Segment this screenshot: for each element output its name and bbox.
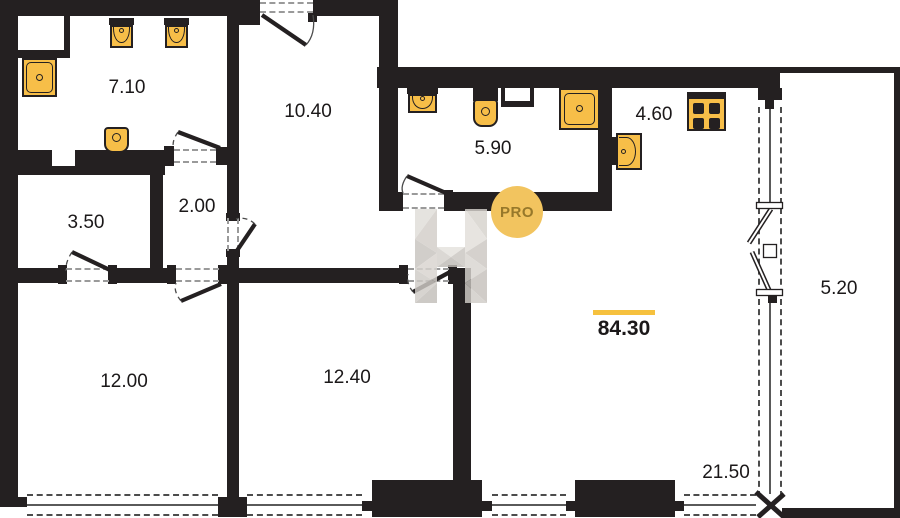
door-opening — [227, 218, 239, 251]
wall — [167, 265, 176, 284]
total-area-accent-bar — [593, 310, 655, 315]
window — [247, 494, 362, 516]
wall — [227, 13, 239, 150]
total-area-label: 84.30 — [598, 317, 651, 341]
window — [27, 494, 218, 516]
sink-icon — [109, 18, 134, 48]
wall — [227, 150, 239, 218]
entrance-opening — [260, 2, 313, 13]
duct-niche — [18, 16, 64, 50]
wall — [362, 501, 372, 511]
wall — [218, 497, 247, 517]
wall — [379, 0, 398, 211]
room-area-label: 21.50 — [702, 462, 750, 484]
wall — [482, 501, 492, 511]
room-area-label: 4.60 — [636, 104, 673, 126]
window — [492, 494, 566, 516]
door-opening — [174, 149, 216, 163]
glazing-line — [769, 296, 771, 494]
toilet-icon — [104, 127, 129, 163]
wall — [566, 501, 575, 511]
door-bedroom-left — [175, 283, 221, 301]
sink-icon — [164, 18, 189, 48]
wall — [399, 265, 408, 284]
wall-niche — [52, 150, 75, 166]
room-area-label: 7.10 — [109, 77, 146, 99]
room-area-label: 3.50 — [68, 212, 105, 234]
room-area-label: 10.40 — [284, 101, 332, 123]
wall — [0, 150, 165, 175]
wall — [109, 268, 176, 283]
wall — [0, 0, 18, 507]
glazing-line — [769, 107, 771, 205]
wall — [575, 480, 675, 517]
door-opening — [66, 268, 109, 282]
wall — [377, 67, 780, 88]
wall — [765, 100, 774, 109]
shower-icon — [559, 88, 600, 130]
window — [684, 494, 756, 516]
room-area-label: 2.00 — [179, 196, 216, 218]
wall — [0, 268, 66, 283]
room-area-label: 12.40 — [323, 367, 371, 389]
wall — [372, 480, 482, 517]
toilet-icon — [473, 87, 498, 127]
wall — [164, 146, 174, 166]
wall — [782, 508, 900, 518]
door-opening — [176, 268, 219, 282]
door-entrance — [262, 15, 314, 45]
wall — [780, 67, 900, 73]
duct-niche — [505, 88, 530, 101]
stove-icon — [687, 92, 726, 131]
room-area-label: 5.20 — [821, 278, 858, 300]
watermark-h-logo — [415, 209, 487, 303]
wall — [675, 501, 684, 511]
wall — [227, 283, 239, 497]
sink-icon — [407, 87, 438, 113]
wall — [894, 67, 900, 512]
wall — [18, 497, 27, 507]
sink-icon — [610, 133, 642, 170]
door-opening — [403, 193, 444, 209]
room-area-label: 5.90 — [475, 138, 512, 160]
wall — [0, 0, 260, 16]
room-area-label: 12.00 — [100, 371, 148, 393]
door-bathroom — [173, 132, 220, 149]
shower-icon — [22, 58, 57, 97]
wall — [216, 147, 227, 165]
wall — [219, 268, 407, 283]
floor-plan: 7.10 10.40 5.90 4.60 3.50 2.00 12.00 12.… — [0, 0, 900, 518]
wall — [380, 192, 403, 211]
wall — [768, 295, 777, 303]
wall — [758, 88, 782, 100]
pro-badge: PRO — [491, 186, 543, 238]
wall — [150, 175, 163, 268]
door-bathroom-center — [402, 176, 446, 193]
